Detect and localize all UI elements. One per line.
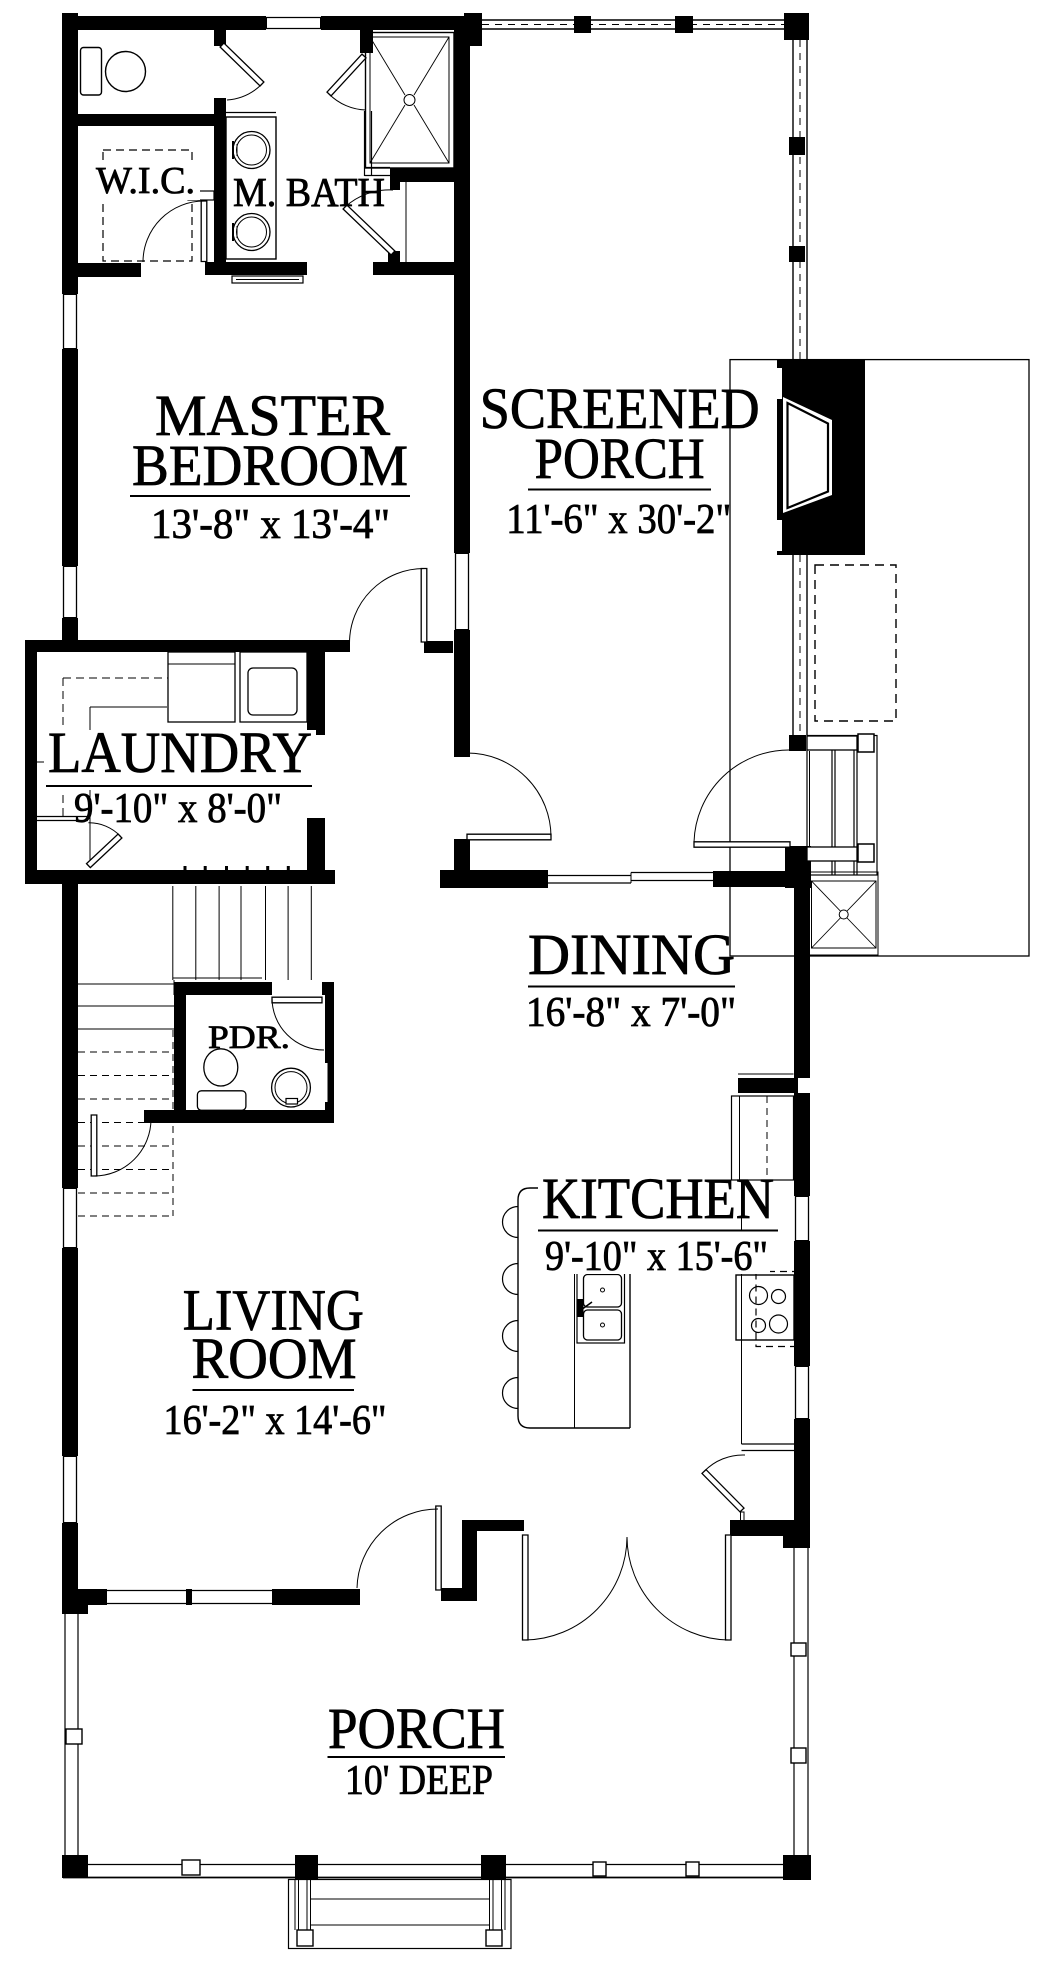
svg-text:KITCHEN: KITCHEN	[542, 1166, 774, 1231]
svg-text:ROOM: ROOM	[192, 1326, 357, 1391]
svg-text:PORCH: PORCH	[328, 1696, 505, 1761]
svg-text:16'-2" x 14'-6": 16'-2" x 14'-6"	[164, 1398, 387, 1444]
svg-text:DINING: DINING	[528, 922, 735, 987]
svg-text:W.I.C.: W.I.C.	[96, 160, 195, 202]
svg-text:LAUNDRY: LAUNDRY	[48, 720, 312, 785]
svg-text:9'-10" x 15'-6": 9'-10" x 15'-6"	[545, 1234, 768, 1280]
svg-text:11'-6" x 30'-2": 11'-6" x 30'-2"	[506, 497, 731, 543]
svg-text:PDR.: PDR.	[208, 1020, 290, 1056]
svg-text:BEDROOM: BEDROOM	[132, 433, 408, 498]
svg-text:PORCH: PORCH	[535, 426, 705, 491]
svg-text:16'-8" x 7'-0": 16'-8" x 7'-0"	[526, 990, 736, 1036]
svg-text:13'-8" x 13'-4": 13'-8" x 13'-4"	[151, 502, 390, 548]
svg-text:10' DEEP: 10' DEEP	[345, 1758, 493, 1804]
svg-text:9'-10" x 8'-0": 9'-10" x 8'-0"	[74, 786, 282, 832]
svg-text:M. BATH: M. BATH	[233, 169, 385, 215]
